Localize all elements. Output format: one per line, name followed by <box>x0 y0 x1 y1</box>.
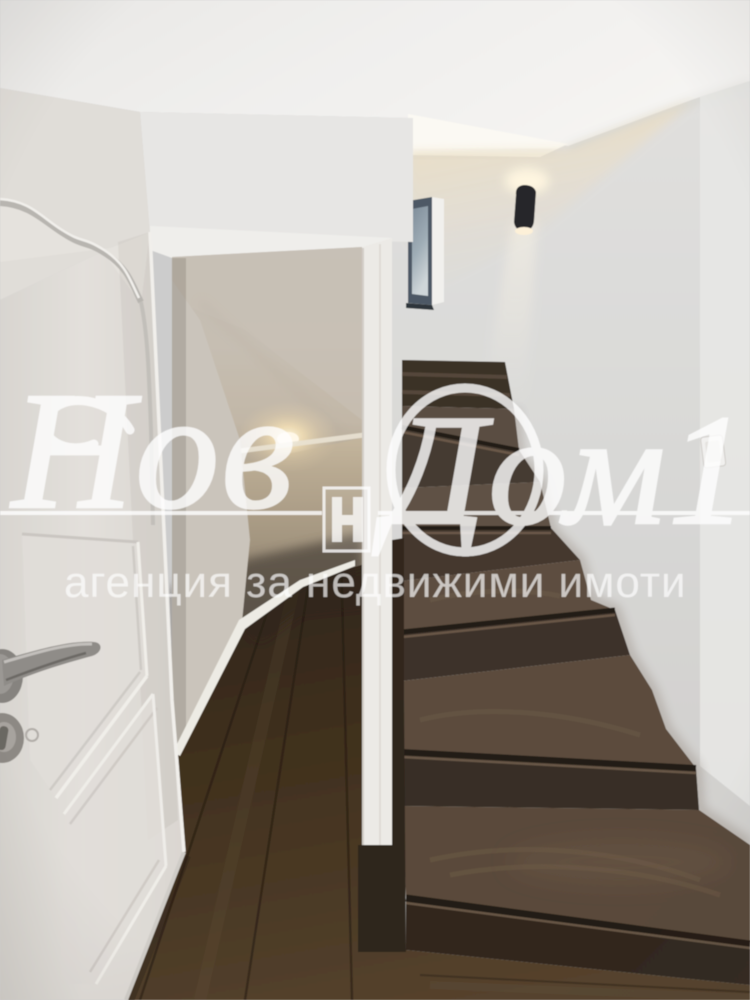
svg-text:агенция за недвижими имоти: агенция за недвижими имоти <box>64 558 687 607</box>
svg-text:Нов: Нов <box>10 358 296 544</box>
svg-text:Дом1: Дом1 <box>372 383 750 558</box>
